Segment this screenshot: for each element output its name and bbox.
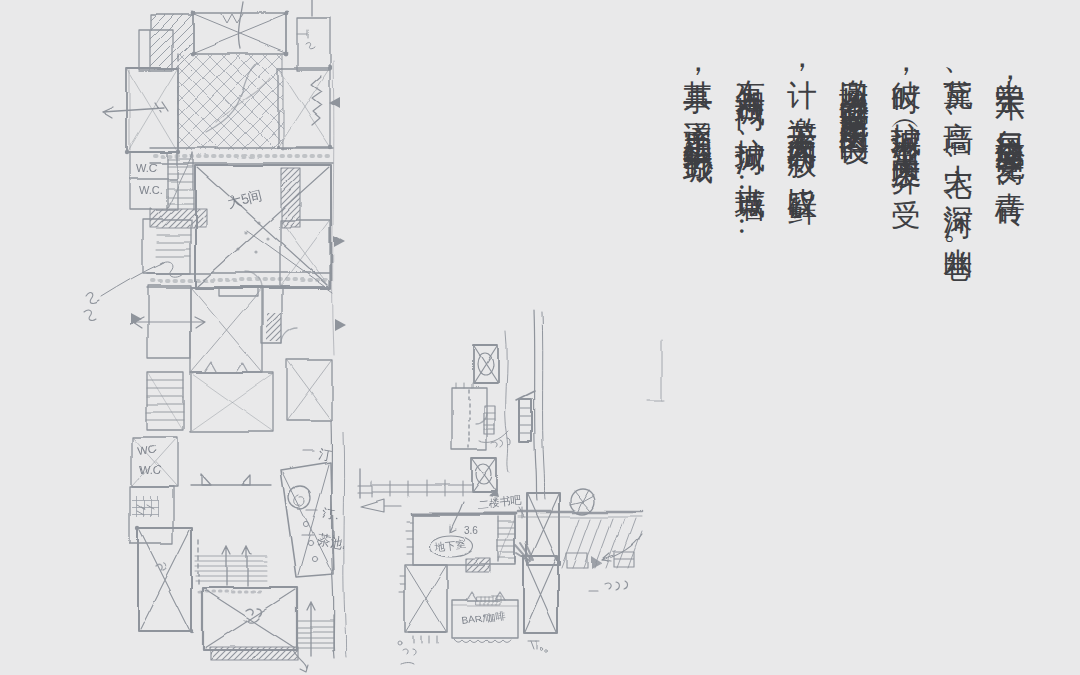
wc-label: WC <box>137 443 157 457</box>
essay-column-3: 彼时，护城河（奎河）尚未废弃。受 <box>880 56 932 675</box>
essay-column-1: 中学六年，每日途经回龙窝：青砖、 <box>984 56 1036 675</box>
street-lines <box>506 311 545 501</box>
essay-column-4: 邀回故乡进行回龙窝历史街区的设 <box>828 56 880 675</box>
essay-column-5: 计，邀若干友人共同研叙，皆叹鲜 <box>776 56 828 675</box>
essay-column-2: 黛瓦、高墙、大宅、深河、幽巷。 <box>932 56 984 675</box>
essay-text-panel: 中学六年，每日途经回龙窝：青砖、 黛瓦、高墙、大宅、深河、幽巷。 彼时，护城河（… <box>672 56 1036 675</box>
bar-label: BAR/咖啡 <box>461 609 505 626</box>
lower-building-plan <box>358 311 664 664</box>
second-floor-bar-label: 二楼书吧 <box>477 494 522 511</box>
wc-label: W.C <box>136 162 157 174</box>
wc-label: W.C <box>140 464 161 476</box>
tree-symbol <box>571 490 595 514</box>
depth-label: 3.6 <box>464 525 478 536</box>
essay-column-7: 其事，遂定主题「织补彭城」。 <box>672 56 724 675</box>
ting-label: 汀. <box>321 504 340 522</box>
upper-building-plan <box>84 0 346 672</box>
page: W.C W.C. WC W.C 大5间 汀 汀. 茶池. 二楼书吧 3.6 地下… <box>0 0 1080 675</box>
ting-label: 汀 <box>317 446 332 463</box>
basement-label: 地下室 <box>434 537 468 552</box>
essay-column-6: 有人知古城门、护城河、古城墙…… <box>724 56 776 675</box>
hall-label: 大5间 <box>225 187 264 211</box>
wc-label: W.C. <box>139 184 163 196</box>
sketch-labels: W.C W.C. WC W.C 大5间 汀 汀. 茶池. 二楼书吧 3.6 地下… <box>136 162 522 626</box>
